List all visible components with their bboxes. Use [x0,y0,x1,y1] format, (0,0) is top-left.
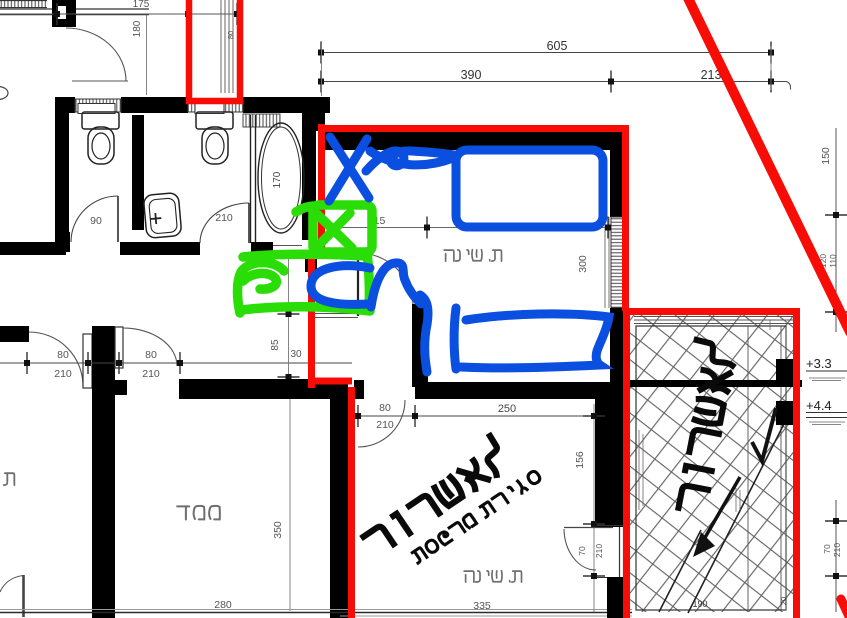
svg-text:300: 300 [577,255,589,273]
svg-text:70: 70 [577,546,587,556]
svg-text:210: 210 [594,544,604,558]
svg-text:156: 156 [574,451,586,469]
svg-text:+3.3: +3.3 [806,356,832,371]
svg-text:210: 210 [832,543,842,557]
svg-text:150: 150 [820,147,832,165]
svg-text:80: 80 [379,402,391,414]
svg-text:210: 210 [54,368,72,380]
svg-text:210: 210 [376,419,394,431]
svg-text:110: 110 [828,254,838,268]
svg-text:85: 85 [270,339,281,351]
svg-text:80: 80 [145,349,157,361]
svg-text:90: 90 [90,215,102,227]
svg-text:210: 210 [215,212,233,224]
svg-text:605: 605 [547,39,568,53]
svg-text:80: 80 [226,31,235,39]
svg-text:335: 335 [473,600,491,612]
svg-text:350: 350 [272,521,284,539]
svg-text:80: 80 [57,349,69,361]
svg-text:190: 190 [692,599,707,609]
svg-text:170: 170 [272,171,283,188]
svg-text:390: 390 [461,68,482,82]
svg-text:250: 250 [498,403,516,415]
svg-text:175: 175 [133,0,150,10]
svg-text:20: 20 [779,597,788,605]
svg-text:180: 180 [132,20,143,37]
svg-text:70: 70 [822,544,832,554]
svg-text:+4.4: +4.4 [806,398,832,413]
svg-text:210: 210 [142,368,160,380]
svg-text:30: 30 [290,349,302,360]
